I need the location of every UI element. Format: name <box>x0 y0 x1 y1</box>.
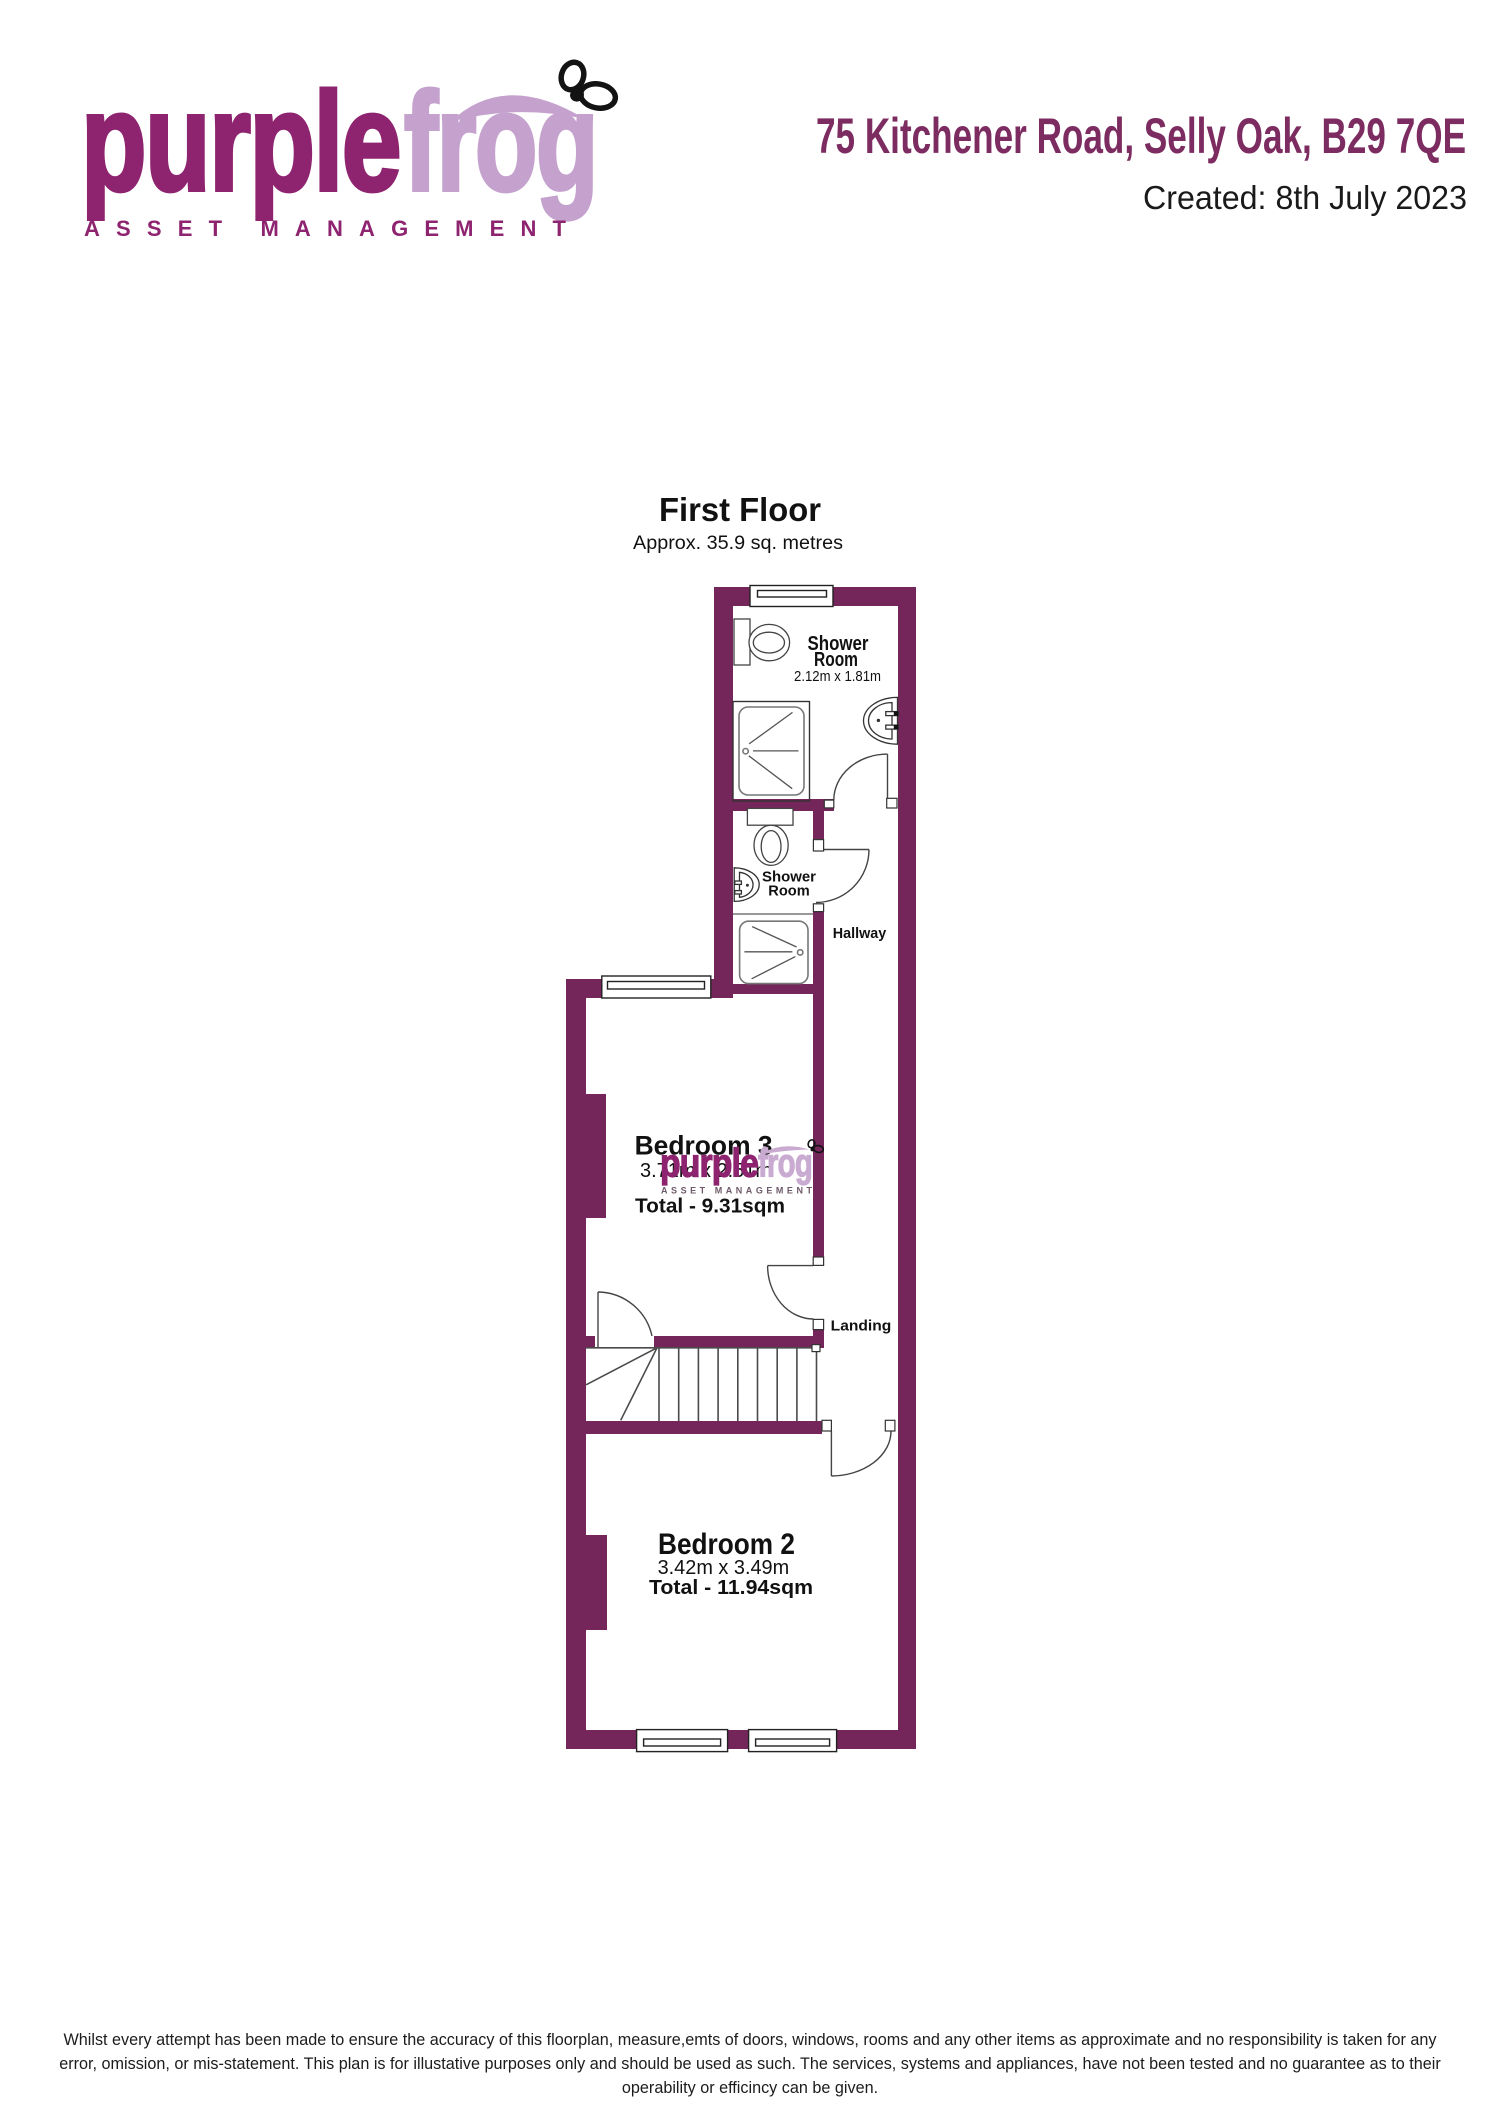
svg-text:Whilst every attempt has been: Whilst every attempt has been made to en… <box>63 2031 1437 2049</box>
svg-text:Landing: Landing <box>831 1318 892 1335</box>
svg-text:2.12m x 1.81m: 2.12m x 1.81m <box>794 668 881 685</box>
svg-text:Hallway: Hallway <box>833 925 887 942</box>
svg-text:75 Kitchener Road, Selly Oak,: 75 Kitchener Road, Selly Oak, B29 7QE <box>816 108 1466 164</box>
svg-text:ASSET MANAGEMENT: ASSET MANAGEMENT <box>661 1186 813 1196</box>
svg-text:Total - 9.31sqm: Total - 9.31sqm <box>635 1196 785 1218</box>
svg-text:purple: purple <box>660 1142 758 1186</box>
svg-text:3.42m x 3.49m: 3.42m x 3.49m <box>658 1557 790 1579</box>
svg-text:Created: 8th July 2023: Created: 8th July 2023 <box>1143 179 1467 216</box>
svg-text:Room: Room <box>768 882 809 899</box>
svg-text:First Floor: First Floor <box>659 491 821 528</box>
svg-text:operability or efficincy can b: operability or efficincy can be given. <box>622 2079 878 2097</box>
svg-text:Bedroom 2: Bedroom 2 <box>658 1528 795 1561</box>
svg-text:purple: purple <box>81 63 400 220</box>
svg-text:error, omission, or mis-statem: error, omission, or mis-statement. This … <box>59 2055 1441 2073</box>
svg-text:Approx. 35.9 sq. metres: Approx. 35.9 sq. metres <box>633 533 843 554</box>
svg-text:Total - 11.94sqm: Total - 11.94sqm <box>649 1577 813 1599</box>
